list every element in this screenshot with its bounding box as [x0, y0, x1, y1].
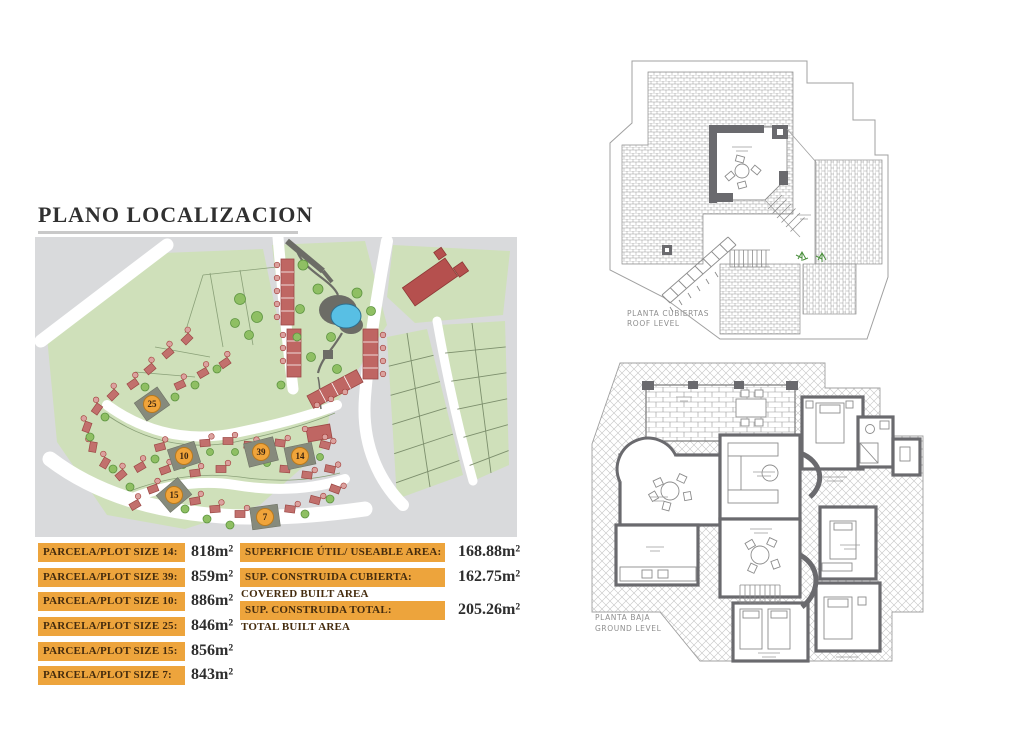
badge-7: 7: [263, 512, 268, 522]
plot-size-value: 843m²: [191, 665, 233, 685]
plot-size-row: PARCELA/PLOT SIZE 7: 843m²: [38, 666, 298, 686]
plot-size-label: PARCELA/PLOT SIZE 15:: [38, 642, 185, 661]
park-kiosk: [323, 350, 333, 359]
badge-25: 25: [148, 399, 158, 409]
badge-39: 39: [257, 447, 267, 457]
area-sublabel: TOTAL BUILT AREA: [241, 621, 350, 633]
plot-size-label: PARCELA/PLOT SIZE 7:: [38, 666, 185, 685]
page-title: PLANO LOCALIZACION: [38, 202, 313, 228]
brochure-page: PLANO LOCALIZACION: [0, 0, 1024, 732]
area-value: 205.26m²: [458, 600, 520, 620]
area-value: 168.88m²: [458, 542, 520, 562]
ground-plan-drawing: PLANTA BAJA GROUND LEVEL: [558, 357, 1003, 695]
area-label: SUPERFICIE ÚTIL/ USEABLE AREA:: [240, 543, 445, 562]
badge-15: 15: [170, 490, 180, 500]
plot-size-label: PARCELA/PLOT SIZE 25:: [38, 617, 185, 636]
plot-size-label: PARCELA/PLOT SIZE 10:: [38, 592, 185, 611]
plot-size-label: PARCELA/PLOT SIZE 14:: [38, 543, 185, 562]
area-sublabel: COVERED BUILT AREA: [241, 588, 369, 600]
area-value: 162.75m²: [458, 567, 520, 587]
badge-10: 10: [180, 451, 190, 461]
ground-plan-label: PLANTA BAJA GROUND LEVEL: [595, 613, 662, 633]
site-map: 25 10 15 39 14 7: [35, 237, 517, 537]
area-label: SUP. CONSTRUIDA CUBIERTA:: [240, 568, 445, 587]
plot-size-value: 818m²: [191, 542, 233, 562]
plot-size-row: PARCELA/PLOT SIZE 15: 856m²: [38, 642, 298, 662]
badge-14: 14: [296, 451, 306, 461]
plot-size-value: 846m²: [191, 616, 233, 636]
roof-chimney: [662, 245, 672, 255]
area-label: SUP. CONSTRUIDA TOTAL:: [240, 601, 445, 620]
plot-size-value: 886m²: [191, 591, 233, 611]
plot-size-value: 859m²: [191, 567, 233, 587]
roof-plan-drawing: PLANTA CUBIERTAS ROOF LEVEL: [570, 45, 990, 345]
plot-size-label: PARCELA/PLOT SIZE 39:: [38, 568, 185, 587]
title-underline: [38, 231, 298, 234]
ground-terrace: [642, 381, 798, 441]
plot-size-value: 856m²: [191, 641, 233, 661]
